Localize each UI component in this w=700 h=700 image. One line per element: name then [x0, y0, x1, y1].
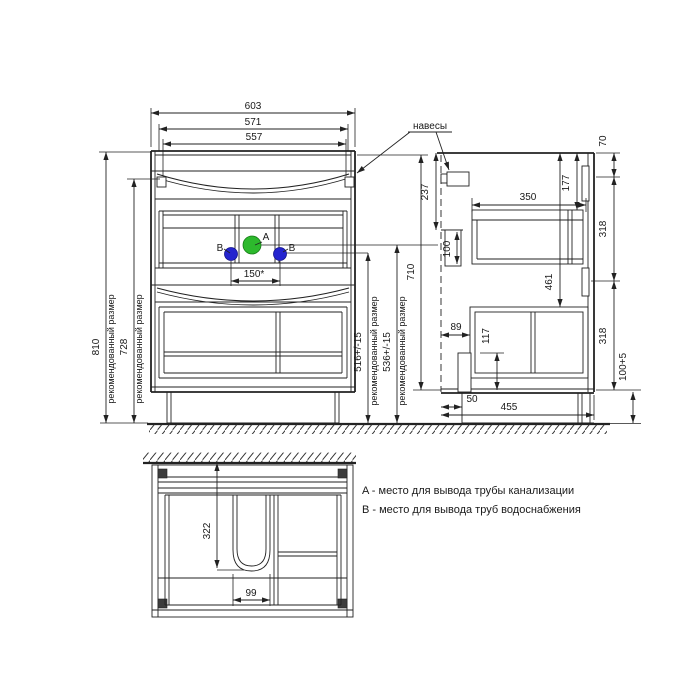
- dim-50: 50: [466, 394, 478, 405]
- foot-bottom-left: [158, 599, 167, 608]
- dim-516: 516+/-15: [353, 332, 364, 372]
- vanity-drawing: B A B: [0, 0, 700, 700]
- hinge-block: [447, 172, 469, 186]
- hinges-label: навесы: [413, 121, 447, 132]
- dim-70: 70: [598, 135, 609, 147]
- dim-455: 455: [501, 402, 518, 413]
- dim-810: 810: [91, 338, 102, 355]
- recommended-label-536: рекомендованный размер: [397, 296, 407, 405]
- foot-top-right: [338, 469, 347, 478]
- legend-line-b: B - место для вывода труб водоснабжения: [362, 504, 581, 516]
- dim-117: 117: [481, 328, 492, 344]
- dim-536: 536+/-15: [382, 332, 393, 372]
- hinge-nub: [441, 174, 447, 183]
- dim-461: 461: [544, 273, 555, 290]
- dim-557: 557: [246, 132, 263, 143]
- dim-603: 603: [245, 101, 262, 112]
- technical-drawing-page: B A B: [0, 0, 700, 700]
- point-a-label: A: [263, 232, 270, 243]
- wall-bracket-right: [345, 177, 354, 187]
- pipe-point-b-right: [274, 248, 287, 261]
- ground-hatch: [100, 423, 641, 434]
- dim-350: 350: [520, 192, 537, 203]
- front-leg: [458, 353, 471, 392]
- dim-237: 237: [420, 183, 431, 200]
- dim-571: 571: [245, 117, 262, 128]
- foot-bottom-right: [338, 599, 347, 608]
- point-b-left-label: B: [217, 243, 224, 254]
- foot-top-left: [158, 469, 167, 478]
- legend-line-a: A - место для вывода трубы канализации: [362, 485, 574, 497]
- recommended-label-516: рекомендованный размер: [369, 296, 379, 405]
- dim-177: 177: [561, 174, 572, 191]
- dim-710: 710: [406, 263, 417, 280]
- dim-318-upper: 318: [598, 220, 609, 237]
- dim-100-5: 100+5: [618, 353, 629, 382]
- dim-100: 100: [442, 240, 453, 257]
- dim-150: 150*: [244, 269, 265, 280]
- recommended-label-810: рекомендованный размер: [106, 294, 116, 403]
- dim-99: 99: [245, 588, 257, 599]
- wall-hatch: [143, 453, 356, 463]
- hanging-rail-upper: [582, 166, 589, 201]
- hanging-rail-lower: [582, 268, 589, 296]
- dim-322: 322: [202, 522, 213, 539]
- dim-318-lower: 318: [598, 327, 609, 344]
- pipe-point-b-left: [225, 248, 238, 261]
- background: [0, 0, 700, 700]
- wall-bracket-left: [157, 177, 166, 187]
- dim-728: 728: [119, 338, 130, 355]
- point-b-right-label: B: [289, 243, 296, 254]
- pipe-point-a: [243, 236, 261, 254]
- recommended-label-728: рекомендованный размер: [134, 294, 144, 403]
- dim-89: 89: [450, 322, 462, 333]
